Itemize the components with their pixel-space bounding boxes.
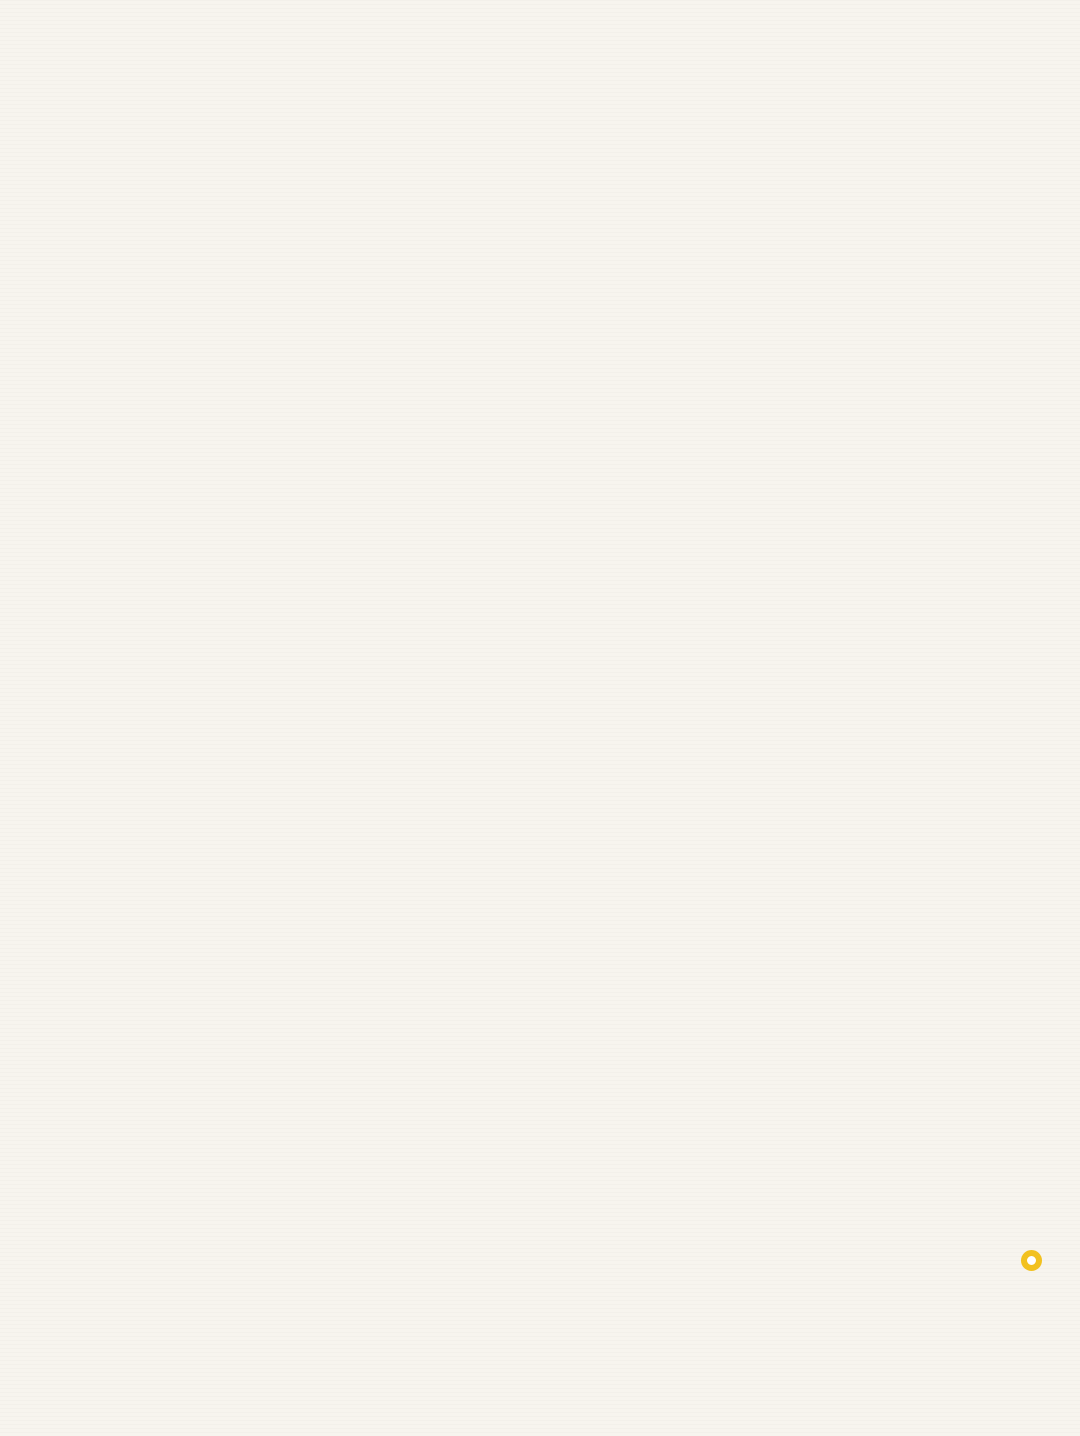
poster-page [0,0,1080,1436]
planet-dot-icon [1021,1250,1042,1271]
changan-city-map [0,0,1080,1436]
